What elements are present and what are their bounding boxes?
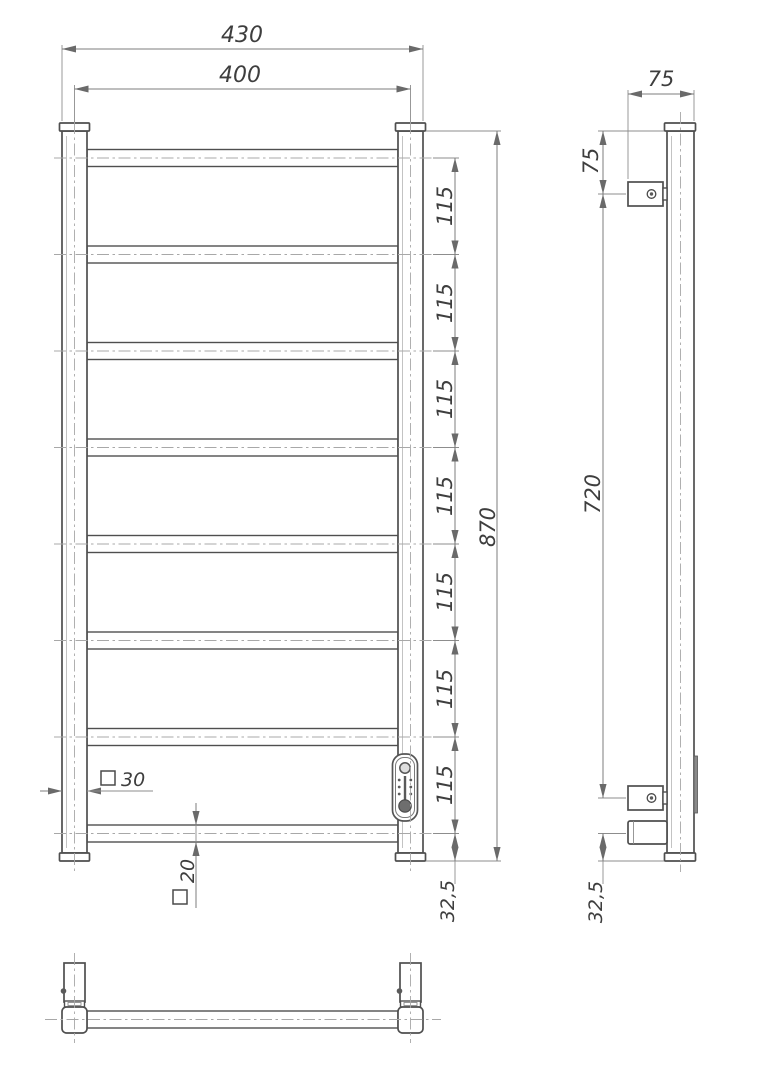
drawing-sheet: 430 400 115 115 115 115 (0, 0, 764, 1080)
bottom-view-left-post (61, 963, 87, 1033)
top-wall-bracket (628, 182, 667, 206)
bottom-view (45, 953, 441, 1043)
screw-icon (61, 988, 67, 994)
towel-rail-drawing: 430 400 115 115 115 115 (0, 0, 764, 1080)
dim-label-rung-spacing: 115 (433, 572, 457, 612)
dim-label-bottom-offset-side: 32,5 (585, 881, 607, 923)
dim-label-overall-width: 430 (221, 23, 263, 48)
dim-label-rung-spacing: 115 (433, 669, 457, 709)
dim-mounting-width: 400 (75, 63, 411, 89)
dim-label-bottom-rung-offset: 32,5 (437, 880, 459, 922)
dim-label-rung-profile: 20 (177, 859, 199, 883)
dim-bottom-offset-side: 32,5 (585, 834, 664, 924)
dim-post-profile: 30 (40, 769, 153, 791)
dim-label-rung-spacing: 115 (433, 283, 457, 323)
rungs (87, 150, 398, 843)
bottom-rung-side (628, 821, 667, 844)
dim-label-bracket-spacing: 720 (581, 474, 605, 514)
dim-bracket-spacing: 720 (581, 194, 626, 798)
square-profile-icon (173, 890, 187, 904)
square-profile-icon (101, 771, 115, 785)
side-view: 75 75 720 32,5 (579, 67, 698, 923)
thermometer-bulb-icon (399, 800, 411, 812)
power-button-icon (400, 763, 410, 773)
dim-rung-spacing-chain: 115 115 115 115 115 115 115 (433, 158, 459, 834)
dim-bottom-rung-offset: 32,5 (437, 834, 459, 923)
dim-label-rung-spacing: 115 (433, 186, 457, 226)
dim-label-rung-spacing: 115 (433, 765, 457, 805)
dim-label-post-profile: 30 (121, 769, 145, 791)
dim-label-overall-height: 870 (476, 507, 500, 547)
control-panel (393, 754, 418, 821)
bottom-view-right-post (397, 963, 423, 1033)
control-panel-side-profile (694, 756, 698, 813)
dim-label-mounting-width: 400 (219, 63, 261, 88)
side-post-top-cap (665, 123, 696, 131)
dim-rung-profile: 20 (173, 803, 199, 908)
screw-icon (397, 988, 403, 994)
side-post (665, 123, 696, 861)
side-post-bottom-cap (665, 853, 696, 861)
dim-label-depth: 75 (648, 67, 675, 91)
dim-label-rung-spacing: 115 (433, 476, 457, 516)
dim-label-top-bracket-offset: 75 (579, 148, 603, 175)
front-centerlines (54, 85, 433, 872)
bottom-wall-bracket (628, 786, 667, 810)
dim-label-rung-spacing: 115 (433, 379, 457, 419)
bottom-view-centerlines (45, 953, 441, 1043)
front-view: 430 400 115 115 115 115 (40, 23, 501, 922)
